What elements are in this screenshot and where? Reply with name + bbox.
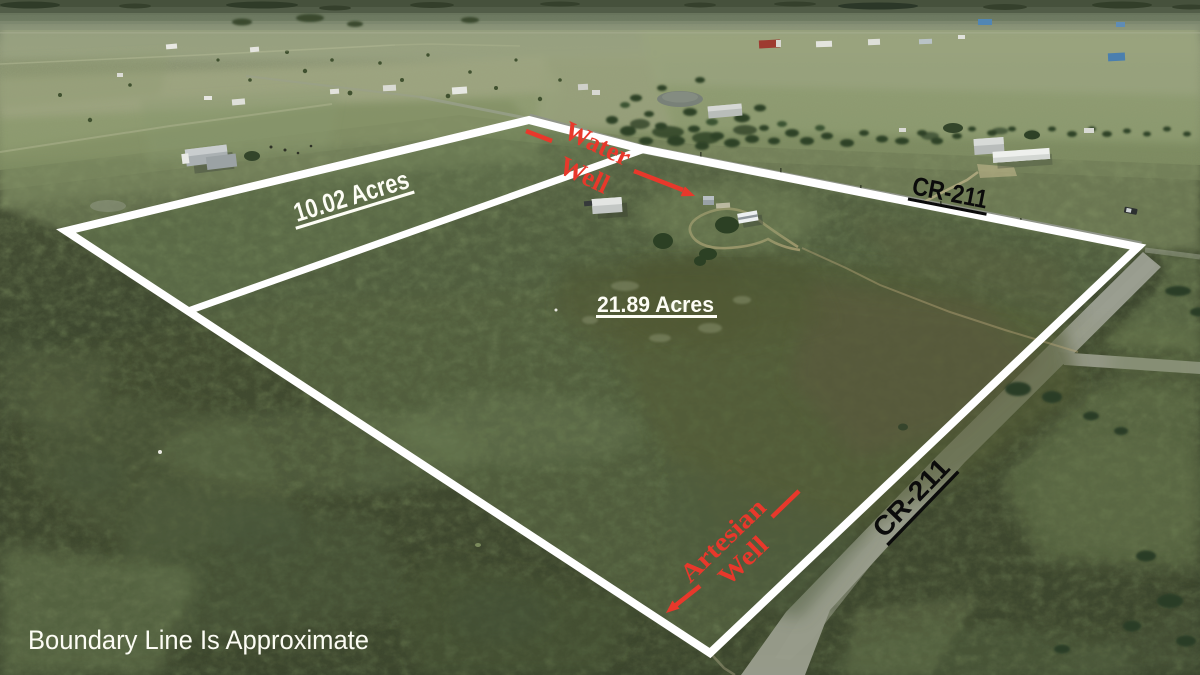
svg-text:Boundary Line Is Approximate: Boundary Line Is Approximate <box>28 625 369 655</box>
svg-text:21.89 Acres: 21.89 Acres <box>597 292 714 317</box>
